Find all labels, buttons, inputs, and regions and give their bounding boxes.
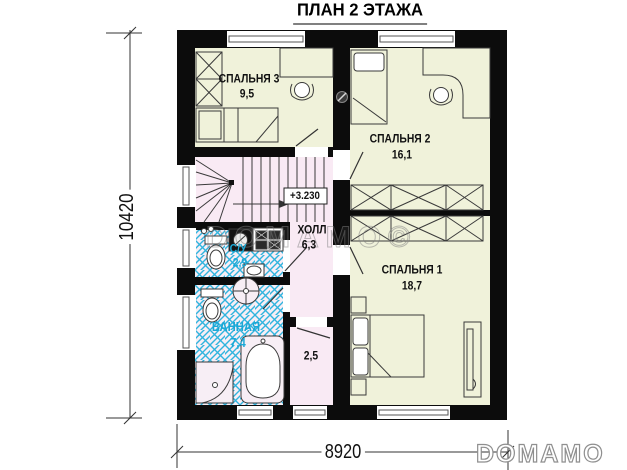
window-top-2 [378, 31, 455, 47]
room-bedroom1-label: СПАЛЬНЯ 1 [382, 265, 443, 277]
room-wc-area: 2,9 [233, 258, 247, 270]
window-bottom-1 [237, 406, 273, 419]
brand-logo: DOMAMO [476, 440, 605, 469]
room-bedroom2-area: 16,1 [392, 150, 412, 162]
window-top-1 [227, 31, 305, 47]
desk-icon [280, 48, 333, 77]
page-title: ПЛАН 2 ЭТАЖА [293, 0, 427, 25]
window-left-2 [176, 228, 196, 268]
wardrobe-icon [351, 185, 483, 210]
room-hall-area: 6,3 [302, 240, 316, 252]
dimension-height-label: 10420 [117, 190, 137, 244]
tv-dresser-icon [464, 322, 481, 397]
window-bottom-2 [293, 406, 327, 419]
pedestal-sink-icon [233, 277, 259, 305]
vent-pipe-icon [337, 92, 348, 103]
bathtub-icon [241, 336, 284, 403]
nightstand-icon [351, 379, 366, 395]
bed-icon [351, 50, 387, 124]
floor-plan-page: ПЛАН 2 ЭТАЖА DOMAMO© СПАЛЬНЯ 3 9,5 СПАЛЬ… [0, 0, 627, 470]
room-storage-floor [290, 327, 333, 405]
room-bedroom1-area: 18,7 [402, 281, 422, 293]
room-bathroom-label: ВАННАЯ [212, 321, 260, 334]
stairs-node [229, 180, 234, 185]
shower-icon [196, 362, 233, 403]
toilet-icon [201, 289, 223, 322]
room-bedroom3-area: 9,5 [240, 89, 254, 101]
room-bathroom-area: 7,4 [230, 337, 246, 350]
nightstand-icon [351, 297, 366, 313]
elevation-label: +3.230 [290, 190, 320, 202]
room-storage-area: 2,5 [304, 351, 318, 363]
double-bed-icon [351, 315, 424, 377]
room-wc-label: С/У [230, 244, 247, 256]
dimension-width-label: 8920 [321, 442, 364, 462]
bed-icon [224, 108, 278, 142]
window-left-1 [176, 165, 196, 207]
dresser-icon [196, 108, 224, 142]
room-bedroom2-label: СПАЛЬНЯ 2 [370, 134, 431, 146]
room-bedroom3-label: СПАЛЬНЯ 3 [219, 74, 280, 86]
room-hall-label: ХОЛЛ [298, 225, 327, 237]
window-left-3 [176, 295, 196, 350]
window-bottom-3 [377, 406, 450, 419]
